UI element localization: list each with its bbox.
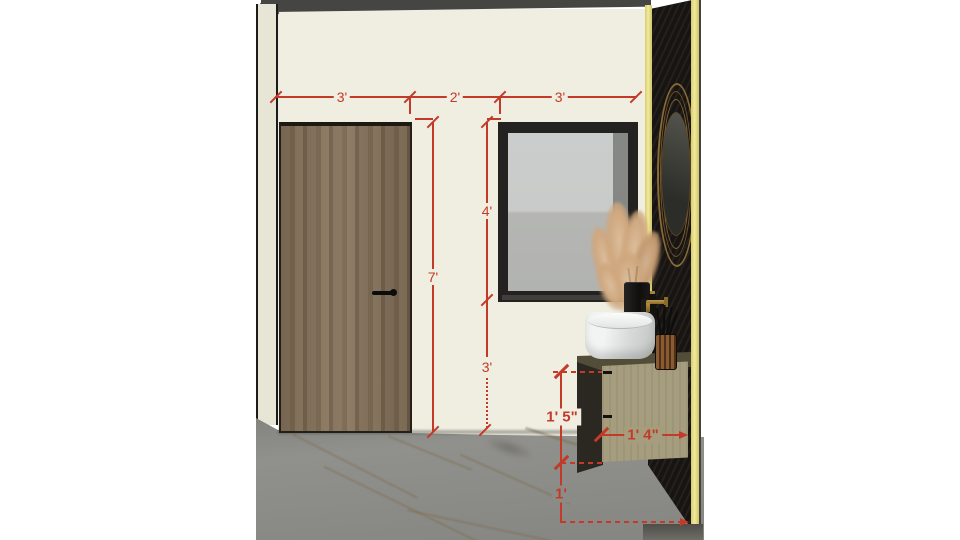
dimension-arrow — [679, 431, 688, 439]
dimension-arrow — [680, 518, 689, 526]
bottle-cap — [650, 291, 655, 294]
scene-right-edge — [699, 0, 701, 531]
vanity-drawer-handle[interactable] — [603, 415, 612, 418]
sketchup-viewport: 3' 2' 3' 7' 4' 3' 1' 5" 1' 1' 4" — [0, 0, 960, 540]
sink-rim — [588, 313, 652, 329]
faucet-spout — [646, 303, 650, 312]
dim-sill-line — [486, 300, 488, 357]
side-wall-return[interactable] — [256, 4, 278, 425]
dim-label-window-height[interactable]: 4' — [479, 203, 495, 219]
door[interactable] — [279, 122, 412, 433]
dim-label-top-right[interactable]: 3' — [552, 89, 568, 105]
dim-label-top-left[interactable]: 3' — [334, 89, 350, 105]
elevation-scene: 3' 2' 3' 7' 4' 3' 1' 5" 1' 1' 4" — [255, 0, 704, 540]
dim-label-vanity-clearance[interactable]: 1' — [552, 486, 570, 503]
vanity-grain — [602, 361, 688, 462]
floor-shadow-band — [643, 524, 703, 540]
dim-extension — [409, 97, 411, 114]
vanity-drawer-front[interactable] — [577, 359, 603, 473]
dim-label-top-middle[interactable]: 2' — [447, 89, 463, 105]
door-handle-knob — [390, 289, 397, 296]
dim-leader-dashed — [561, 462, 605, 464]
dim-sill-dotted — [486, 378, 488, 428]
dim-label-vanity-height[interactable]: 1' 5" — [543, 409, 581, 426]
vanity-side-panel[interactable] — [602, 361, 688, 462]
door-grain-shading — [281, 126, 410, 431]
mirror-glass[interactable] — [661, 112, 691, 236]
dim-label-door-height[interactable]: 7' — [425, 269, 441, 285]
dim-floor-dashed-line — [561, 521, 681, 523]
dim-label-vanity-width[interactable]: 1' 4" — [624, 427, 662, 444]
dim-extension — [499, 97, 501, 114]
vessel-sink[interactable] — [585, 312, 655, 359]
vanity-drawer-handle[interactable] — [603, 371, 612, 374]
dim-label-sill[interactable]: 3' — [479, 359, 495, 375]
dim-leader — [415, 118, 433, 120]
led-strip-right[interactable] — [691, 0, 699, 528]
brush-cup[interactable] — [655, 334, 677, 370]
